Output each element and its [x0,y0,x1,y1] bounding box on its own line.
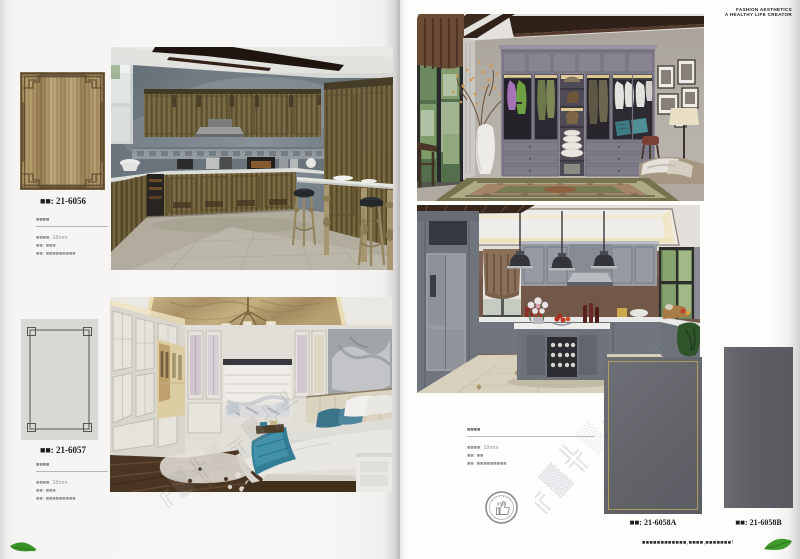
svg-text:95%: 95% [497,502,506,507]
